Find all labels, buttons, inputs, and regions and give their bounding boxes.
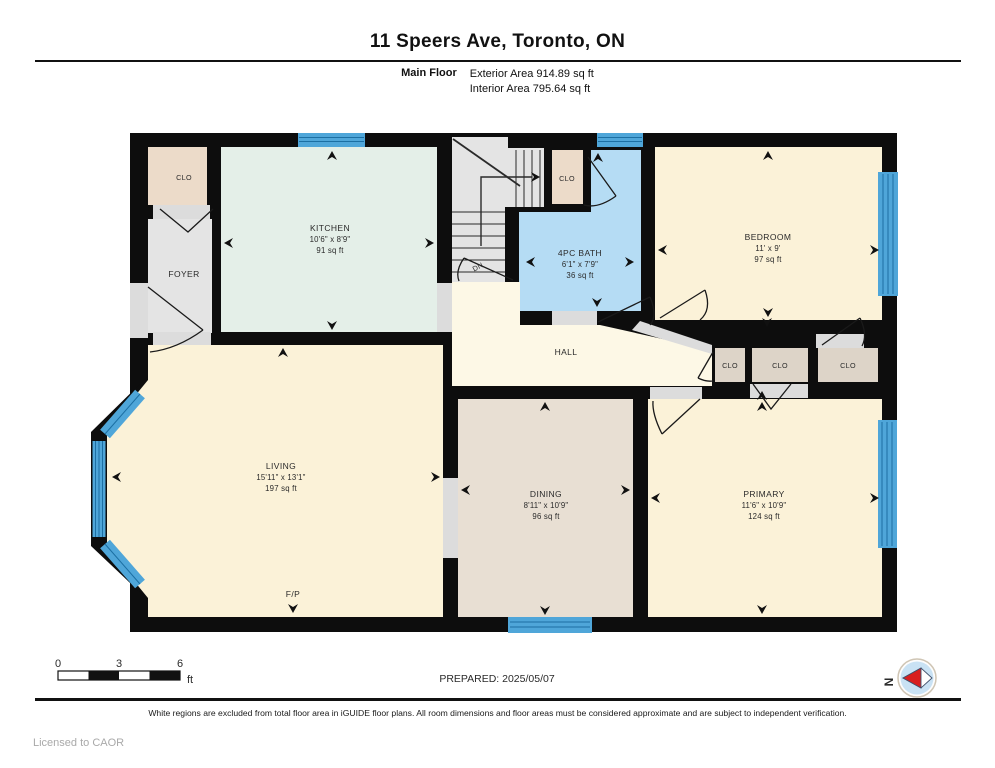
window: [298, 133, 365, 147]
fireplace-label: F/P: [286, 589, 300, 599]
dining-area: 96 sq ft: [532, 512, 560, 521]
scale-tick-0: 0: [55, 658, 61, 670]
bath-dims: 6'1" x 7'9": [562, 260, 598, 269]
bath-area: 36 sq ft: [566, 271, 594, 280]
kitchen-dims: 10'6" x 8'9": [310, 235, 351, 244]
hall-label: HALL: [555, 347, 578, 357]
living-area: 197 sq ft: [265, 484, 297, 493]
bath-label: 4PC BATH: [558, 248, 602, 258]
closet-label: CLO: [722, 361, 738, 370]
floor-plan: KITCHEN 10'6" x 8'9" 91 sq ft 4PC BATH 6…: [0, 0, 995, 768]
closet-label: CLO: [176, 173, 192, 182]
scale-tick-3: 3: [116, 658, 122, 670]
prepared-date: PREPARED: 2025/05/07: [439, 673, 555, 685]
compass-north-label: N: [882, 678, 896, 687]
scale-unit: ft: [187, 674, 193, 686]
bedroom-label: BEDROOM: [745, 232, 792, 242]
closet-label: CLO: [559, 174, 575, 183]
dining-label: DINING: [530, 489, 562, 499]
primary-dims: 11'6" x 10'9": [742, 501, 787, 510]
primary-area: 124 sq ft: [748, 512, 780, 521]
scale-tick-6: 6: [177, 658, 183, 670]
closet-label: CLO: [840, 361, 856, 370]
entry-opening: [130, 283, 148, 338]
window: [508, 617, 592, 633]
dining-dims: 8'11" x 10'9": [524, 501, 569, 510]
window: [597, 133, 643, 147]
kitchen-label: KITCHEN: [310, 223, 350, 233]
footer-divider: [35, 698, 961, 701]
foyer-label: FOYER: [168, 269, 199, 279]
living-dims: 15'11" x 13'1": [256, 473, 305, 482]
bedroom-dims: 11' x 9': [755, 244, 781, 253]
primary-label: PRIMARY: [743, 489, 784, 499]
compass-icon: N: [882, 659, 936, 697]
kitchen-area: 91 sq ft: [316, 246, 344, 255]
license-note: Licensed to CAOR: [33, 737, 124, 749]
bedroom-area: 97 sq ft: [754, 255, 782, 264]
closet-label: CLO: [772, 361, 788, 370]
living-label: LIVING: [266, 461, 296, 471]
room-fills: [107, 137, 882, 617]
disclaimer: White regions are excluded from total fl…: [0, 708, 995, 718]
scale-bar: 0 3 6 ft: [55, 658, 193, 686]
